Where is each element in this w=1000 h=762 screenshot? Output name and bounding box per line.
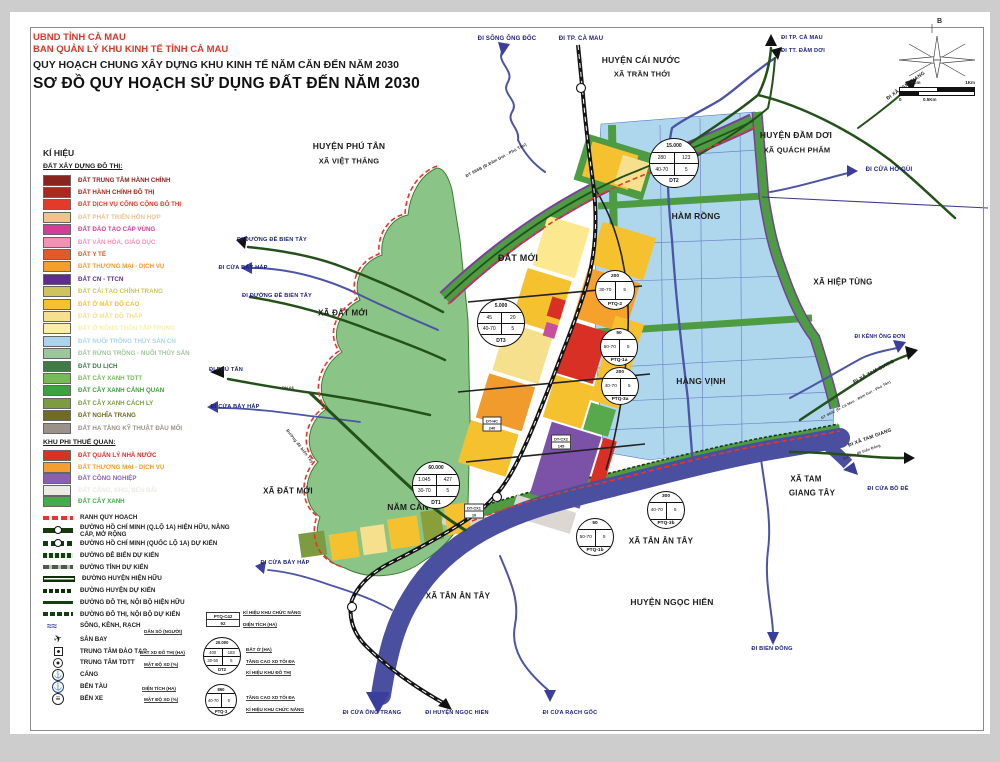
legend-item-label: ĐẤT Y TẾ bbox=[78, 251, 106, 258]
callout-urban-code-label: KÍ HIỆU KHU ĐÔ THỊ bbox=[246, 670, 291, 676]
stat-circle: 5.000 452040-705 DT3 bbox=[477, 299, 525, 347]
legend-item: ĐẤT Ở NÔNG THÔN TẬP TRUNG bbox=[43, 323, 243, 335]
color-swatch bbox=[43, 462, 71, 473]
map-label: ĐI CỬA HỐ GÙI bbox=[866, 167, 913, 173]
map-label: GIANG TÂY bbox=[789, 489, 835, 498]
legend-item-label: ĐẤT CÂY XANH bbox=[78, 498, 125, 505]
stat-circle: 50 50-705 PTQ-1a bbox=[600, 328, 638, 366]
color-swatch bbox=[43, 249, 71, 260]
legend-line-label: ĐƯỜNG ĐÔ THỊ, NỘI BỘ HIỆN HỮU bbox=[80, 599, 230, 606]
callout-area-label: DIỆN TÍCH (HA) bbox=[243, 622, 277, 628]
scale-label-zero: 0 bbox=[899, 97, 902, 102]
legend-item-label: ĐẤT DU LỊCH bbox=[78, 363, 118, 370]
color-swatch bbox=[43, 385, 71, 396]
map-label: ĐI CỬA BỒ ĐỀ bbox=[867, 486, 908, 492]
legend-urban-list: ĐẤT TRUNG TÂM HÀNH CHÍNH ĐẤT HÀNH CHÍNH … bbox=[43, 174, 243, 434]
legend-line-label: ĐƯỜNG HUYỆN HIỆN HỮU bbox=[82, 575, 232, 582]
legend-item-label: ĐẤT Ở MẬT ĐỘ CAO bbox=[78, 301, 139, 308]
legend-line-label: ĐƯỜNG TỈNH DỰ KIẾN bbox=[80, 564, 230, 571]
legend-item-label: ĐẤT HÀNH CHÍNH ĐÔ THỊ bbox=[78, 189, 154, 196]
legend-item-label: ĐẤT QUẢN LÝ NHÀ NƯỚC bbox=[78, 452, 156, 459]
color-swatch bbox=[43, 398, 71, 409]
color-swatch bbox=[43, 361, 71, 372]
map-label: ĐH.06 bbox=[282, 386, 294, 390]
legend-item-label: ĐẤT Ở MẬT ĐỘ THẤP bbox=[78, 313, 142, 320]
stat-circle-grid: 50-705 bbox=[577, 529, 613, 546]
legend-item-label: ĐẤT CẢI TẠO CHỈNH TRANG bbox=[78, 288, 163, 295]
map-label: ĐI TT. ĐẦM DƠI bbox=[781, 48, 825, 54]
legend-point-label: SÂN BAY bbox=[80, 636, 107, 643]
north-label: B bbox=[937, 18, 942, 25]
legend-item: ĐẤT RỪNG TRỒNG - NUÔI THỦY SẢN bbox=[43, 347, 243, 359]
compass-rose: B bbox=[897, 20, 977, 82]
map-label: ĐI CỬA BẢY HÁP bbox=[260, 560, 309, 566]
color-swatch bbox=[43, 187, 71, 198]
zone-code: DT-CX2 bbox=[552, 436, 570, 442]
sample-zone-area: 92 bbox=[207, 619, 239, 626]
stat-circle-grid: 452040-705 bbox=[478, 312, 524, 334]
legend-item: ĐẤT CÂY XANH TDTT bbox=[43, 372, 243, 384]
legend-item: ĐẤT THƯƠNG MẠI - DỊCH VỤ bbox=[43, 462, 243, 473]
line-style-swatch bbox=[43, 612, 73, 616]
map-label: HÀNG VỊNH bbox=[676, 376, 726, 386]
stat-circle: 200 40-705 PTQ-3a bbox=[601, 367, 639, 405]
agency-line-1: UBND TỈNH CÀ MAU bbox=[33, 32, 420, 44]
legend-item: ĐẤT CN - TTCN bbox=[43, 273, 243, 285]
legend-point-label: CẢNG bbox=[80, 671, 98, 678]
map-label: HUYỆN NGỌC HIỂN bbox=[630, 597, 713, 607]
callout-housing-label: ĐẤT Ở (HA) bbox=[246, 647, 272, 653]
legend-item-label: ĐẤT NGHĨA TRANG bbox=[78, 412, 136, 419]
legend-item: ĐẤT Ở MẬT ĐỘ CAO bbox=[43, 298, 243, 310]
scale-label-end: 1Km bbox=[965, 80, 975, 85]
color-swatch bbox=[43, 299, 71, 310]
color-swatch bbox=[43, 261, 71, 272]
map-label: ĐI ĐƯỜNG ĐÊ BIỂN TÂY bbox=[242, 293, 312, 299]
plan-subtitle: QUY HOẠCH CHUNG XÂY DỰNG KHU KINH TẾ NĂM… bbox=[33, 59, 420, 72]
legend-item-label: ĐẤT CÂY XANH CÁCH LY bbox=[78, 400, 153, 407]
point-icon bbox=[43, 681, 73, 693]
zone-area: 10 bbox=[465, 511, 483, 518]
map-label: ĐI KÊNH ÔNG ĐƠN bbox=[855, 334, 906, 340]
map-label: ĐẤT MỚI bbox=[498, 253, 538, 263]
map-label: XÃ ĐẤT MỚI bbox=[318, 309, 368, 318]
legend-section1-title: ĐẤT XÂY DỰNG ĐÔ THỊ: bbox=[43, 163, 243, 170]
line-style-swatch bbox=[43, 516, 73, 520]
agency-line-2: BAN QUẢN LÝ KHU KINH TẾ TỈNH CÀ MAU bbox=[33, 44, 420, 56]
legend-line-item: ĐƯỜNG ĐÊ BIỂN DỰ KIẾN bbox=[43, 550, 243, 562]
legend-item-label: ĐẤT CÔNG NGHIỆP bbox=[78, 475, 136, 482]
callout-maxfloors2-label: TẦNG CAO XD TỐI ĐA bbox=[246, 695, 295, 701]
callout-zone-code-label: KÍ HIỆU KHU CHỨC NĂNG bbox=[243, 610, 301, 616]
stat-circle-grid: 30-705 bbox=[596, 281, 634, 299]
color-swatch bbox=[43, 473, 71, 484]
map-label: ĐI CỬA RẠCH GỐC bbox=[543, 710, 598, 716]
callout-area2-label: DIỆN TÍCH (HA) bbox=[142, 686, 176, 692]
legend-line-label: ĐƯỜNG HỒ CHÍ MINH (QUỐC LỘ 1A) DỰ KIẾN bbox=[80, 540, 230, 547]
map-label: XÃ QUÁCH PHẨM bbox=[764, 146, 831, 155]
legend-point-item: BẾN XE bbox=[43, 693, 243, 705]
callout-maxfloors-label: TẦNG CAO XD TỐI ĐA bbox=[246, 659, 295, 665]
zone-code-box: DT-HC 240 bbox=[483, 417, 502, 432]
stat-circle: 15.000 28012340-705 DT2 bbox=[649, 138, 699, 188]
line-style-swatch bbox=[43, 601, 73, 605]
map-label: HÀM RỒNG bbox=[672, 211, 721, 221]
legend-line-label: ĐƯỜNG HỒ CHÍ MINH (Q.LỘ 1A) HIỆN HỮU, NÂ… bbox=[80, 524, 230, 538]
callout-population-label: DÂN SỐ (NGƯỜI) bbox=[144, 629, 182, 635]
legend-item: ĐẤT Ở MẬT ĐỘ THẤP bbox=[43, 310, 243, 322]
legend-item: ĐẤT HẠ TẦNG KỸ THUẬT ĐẦU MỐI bbox=[43, 422, 243, 434]
legend-item: ĐẤT VĂN HÓA, GIÁO DỤC bbox=[43, 236, 243, 248]
legend-heading: KÍ HIỆU bbox=[43, 148, 243, 158]
legend-line-item: RANH QUY HOẠCH bbox=[43, 512, 243, 524]
legend-item-label: ĐẤT THƯƠNG MẠI - DỊCH VỤ bbox=[78, 464, 164, 471]
point-icon bbox=[43, 647, 73, 656]
legend-item: ĐẤT TRUNG TÂM HÀNH CHÍNH bbox=[43, 174, 243, 186]
legend-item: ĐẤT CẢI TẠO CHỈNH TRANG bbox=[43, 286, 243, 298]
legend-point-item: CẢNG bbox=[43, 669, 243, 681]
line-style-swatch bbox=[43, 565, 73, 569]
zone-code: DT-CX1 bbox=[465, 505, 483, 511]
legend-item: ĐẤT THƯƠNG MẠI - DỊCH VỤ bbox=[43, 261, 243, 273]
legend-line-label: ĐƯỜNG ĐÊ BIỂN DỰ KIẾN bbox=[80, 552, 230, 559]
point-icon bbox=[43, 693, 73, 705]
legend-item: ĐẤT NGHĨA TRANG bbox=[43, 409, 243, 421]
title-block: UBND TỈNH CÀ MAU BAN QUẢN LÝ KHU KINH TẾ… bbox=[33, 32, 420, 93]
legend-line-item: ĐƯỜNG HỒ CHÍ MINH (QUỐC LỘ 1A) DỰ KIẾN bbox=[43, 538, 243, 550]
color-swatch bbox=[43, 212, 71, 223]
stat-circle-grid: 40-705 bbox=[648, 502, 684, 519]
map-label: XÃ TRẦN THỚI bbox=[614, 70, 670, 79]
legend-item-label: ĐẤT ĐÀO TẠO CẤP VÙNG bbox=[78, 226, 155, 233]
color-swatch bbox=[43, 496, 71, 507]
scale-label-half: 0.5Km bbox=[923, 97, 937, 102]
legend-line-item: ĐƯỜNG TỈNH DỰ KIẾN bbox=[43, 561, 243, 573]
legend-item: ĐẤT CÂY XANH CÁCH LY bbox=[43, 397, 243, 409]
color-swatch bbox=[43, 274, 71, 285]
line-style-swatch bbox=[43, 528, 73, 533]
map-label: XÃ VIỆT THẮNG bbox=[319, 157, 380, 166]
stat-circle: 50 50-705 PTQ-1b bbox=[576, 518, 614, 556]
stat-circle: 200 30-705 PTQ-2 bbox=[595, 270, 635, 310]
legend-item-label: ĐẤT HẠ TẦNG KỸ THUẬT ĐẦU MỐI bbox=[78, 425, 182, 432]
color-swatch bbox=[43, 336, 71, 347]
map-label: XÃ HIỆP TÙNG bbox=[813, 278, 872, 287]
map-label: HUYỆN CÁI NƯỚC bbox=[602, 55, 681, 65]
line-style-swatch bbox=[43, 589, 73, 593]
legend-freetrade-list: ĐẤT QUẢN LÝ NHÀ NƯỚC ĐẤT THƯƠNG MẠI - DỊ… bbox=[43, 450, 243, 507]
point-icon bbox=[43, 658, 73, 668]
legend-item: ĐẤT NUÔI TRỒNG THỦY SẢN CN bbox=[43, 335, 243, 347]
legend-item: ĐẤT CÂY XANH bbox=[43, 496, 243, 507]
legend-item-label: ĐẤT CN - TTCN bbox=[78, 276, 123, 283]
planning-map-page: UBND TỈNH CÀ MAU BAN QUẢN LÝ KHU KINH TẾ… bbox=[0, 0, 1000, 762]
color-swatch bbox=[43, 224, 71, 235]
callout-density2-label: MẬT ĐỘ XD (%) bbox=[144, 697, 178, 703]
map-label: XÃ TÂN ÂN TÂY bbox=[426, 592, 490, 601]
scale-label-mid-top: 0.5Km bbox=[907, 80, 921, 85]
legend-point-list: SÂN BAY TRUNG TÂM ĐÀO TẠO TRUNG TÂM TDTT… bbox=[43, 634, 243, 705]
map-label: ĐI TP. CÀ MAU bbox=[559, 36, 604, 42]
district-boundary bbox=[762, 197, 988, 208]
stat-circle: 60.000 1.04542730-705 DT1 bbox=[412, 461, 460, 509]
color-swatch bbox=[43, 410, 71, 421]
color-swatch bbox=[43, 348, 71, 359]
legend-point-label: BẾN TÀU bbox=[80, 683, 108, 690]
legend-item-label: ĐẤT CÂY XANH CẢNH QUAN bbox=[78, 387, 164, 394]
stat-circle-grid: 1.04542730-705 bbox=[413, 474, 459, 496]
map-label: ĐI TP. CÀ MAU bbox=[781, 35, 823, 41]
legend-item-label: ĐẤT CẢNG, KHO, BẾN BÃI bbox=[78, 487, 157, 494]
callout-zone-code2-label: KÍ HIỆU KHU CHỨC NĂNG bbox=[246, 707, 304, 713]
sample-zone-box: PTQ-C42 92 bbox=[206, 612, 240, 627]
legend-item: ĐẤT CÔNG NGHIỆP bbox=[43, 473, 243, 484]
map-label: HUYỆN ĐẦM DƠI bbox=[760, 130, 832, 140]
legend-section2-title: KHU PHI THUẾ QUAN: bbox=[43, 439, 243, 446]
map-label: ĐI CỬA ÔNG TRANG bbox=[343, 710, 402, 716]
legend-point-label: TRUNG TÂM ĐÀO TẠO bbox=[80, 648, 147, 655]
zone-area: 145 bbox=[552, 442, 570, 449]
legend-line-item: ĐƯỜNG HỒ CHÍ MINH (Q.LỘ 1A) HIỆN HỮU, NÂ… bbox=[43, 524, 243, 538]
zone-code-box: DT-CX2 145 bbox=[551, 435, 571, 450]
legend-item-label: ĐẤT Ở NÔNG THÔN TẬP TRUNG bbox=[78, 325, 175, 332]
legend-item: ĐẤT HÀNH CHÍNH ĐÔ THỊ bbox=[43, 186, 243, 198]
legend-item-label: ĐẤT CÂY XANH TDTT bbox=[78, 375, 142, 382]
zone-code-box: DT-CX1 10 bbox=[464, 504, 484, 519]
line-style-swatch bbox=[43, 622, 73, 630]
map-label: ĐI HUYỆN NGỌC HIỂN bbox=[425, 710, 489, 716]
map-label: XÃ TAM bbox=[790, 475, 821, 484]
legend-line-label: RANH QUY HOẠCH bbox=[80, 514, 230, 521]
legend-item: ĐẤT Y TẾ bbox=[43, 248, 243, 260]
legend-item-label: ĐẤT PHÁT TRIỂN HỖN HỢP bbox=[78, 214, 161, 221]
color-swatch bbox=[43, 373, 71, 384]
legend-item: ĐẤT PHÁT TRIỂN HỖN HỢP bbox=[43, 211, 243, 223]
color-swatch bbox=[43, 450, 71, 461]
legend-item: ĐẤT DỊCH VỤ CÔNG CỘNG ĐÔ THỊ bbox=[43, 199, 243, 211]
line-style-swatch bbox=[43, 541, 73, 546]
callout-urban-land-label: ĐẤT XD ĐÔ THỊ (HA) bbox=[140, 650, 185, 656]
color-swatch bbox=[43, 286, 71, 297]
color-swatch bbox=[43, 175, 71, 186]
legend-point-label: TRUNG TÂM TDTT bbox=[80, 659, 135, 666]
map-label: ĐI ĐƯỜNG ĐÊ BIỂN TÂY bbox=[237, 237, 307, 243]
scale-bar: 0.5Km 1Km 0 0.5Km bbox=[899, 80, 975, 103]
color-swatch bbox=[43, 423, 71, 434]
point-icon bbox=[43, 634, 73, 645]
legend-point-item: TRUNG TÂM TDTT bbox=[43, 657, 243, 669]
color-swatch bbox=[43, 237, 71, 248]
stat-circle: 300 40-705 PTQ-3b bbox=[647, 491, 685, 529]
legend-item: ĐẤT ĐÀO TẠO CẤP VÙNG bbox=[43, 224, 243, 236]
legend-item: ĐẤT CẢNG, KHO, BẾN BÃI bbox=[43, 484, 243, 495]
legend-point-label: BẾN XE bbox=[80, 695, 103, 702]
color-swatch bbox=[43, 311, 71, 322]
legend-line-item: ĐƯỜNG HUYỆN DỰ KIẾN bbox=[43, 585, 243, 597]
stat-circle-grid: 40-705 bbox=[602, 378, 638, 395]
legend-item: ĐẤT CÂY XANH CẢNH QUAN bbox=[43, 385, 243, 397]
legend-item-label: ĐẤT THƯƠNG MẠI - DỊCH VỤ bbox=[78, 263, 164, 270]
map-label: ĐI BIỂN ĐÔNG bbox=[751, 646, 792, 652]
map-label: ĐI SÔNG ÔNG ĐỐC bbox=[478, 36, 537, 42]
legend-line-item: ĐƯỜNG HUYỆN HIỆN HỮU bbox=[43, 573, 243, 585]
stat-circle-grid: 50-705 bbox=[601, 339, 637, 356]
color-swatch bbox=[43, 323, 71, 334]
zone-area: 240 bbox=[484, 424, 501, 431]
legend-item-label: ĐẤT TRUNG TÂM HÀNH CHÍNH bbox=[78, 177, 170, 184]
callout-density-label: MẬT ĐỘ XD (%) bbox=[144, 662, 178, 668]
stat-circle-grid: 28012340-705 bbox=[650, 152, 698, 175]
map-label: XÃ TÂN ÂN TÂY bbox=[629, 537, 693, 546]
line-style-swatch bbox=[43, 576, 75, 582]
legend-line-label: ĐƯỜNG HUYỆN DỰ KIẾN bbox=[80, 587, 230, 594]
legend-line-item: ĐƯỜNG ĐÔ THỊ, NỘI BỘ HIỆN HỮU bbox=[43, 597, 243, 609]
line-style-swatch bbox=[43, 553, 73, 558]
color-swatch bbox=[43, 485, 71, 496]
legend-item-label: ĐẤT DỊCH VỤ CÔNG CỘNG ĐÔ THỊ bbox=[78, 201, 181, 208]
legend-item-label: ĐẤT VĂN HÓA, GIÁO DỤC bbox=[78, 239, 155, 246]
map-label: XÃ ĐẤT MỚI bbox=[263, 487, 313, 496]
legend-point-item: SÂN BAY bbox=[43, 634, 243, 646]
map-label: HUYỆN PHÚ TÂN bbox=[313, 141, 386, 151]
legend-item: ĐẤT QUẢN LÝ NHÀ NƯỚC bbox=[43, 450, 243, 461]
legend-item-label: ĐẤT RỪNG TRỒNG - NUÔI THỦY SẢN bbox=[78, 350, 190, 357]
legend-item: ĐẤT DU LỊCH bbox=[43, 360, 243, 372]
legend-item-label: ĐẤT NUÔI TRỒNG THỦY SẢN CN bbox=[78, 338, 176, 345]
color-swatch bbox=[43, 199, 71, 210]
point-icon bbox=[43, 669, 73, 681]
page-title: SƠ ĐỒ QUY HOẠCH SỬ DỤNG ĐẤT ĐẾN NĂM 2030 bbox=[33, 74, 420, 93]
